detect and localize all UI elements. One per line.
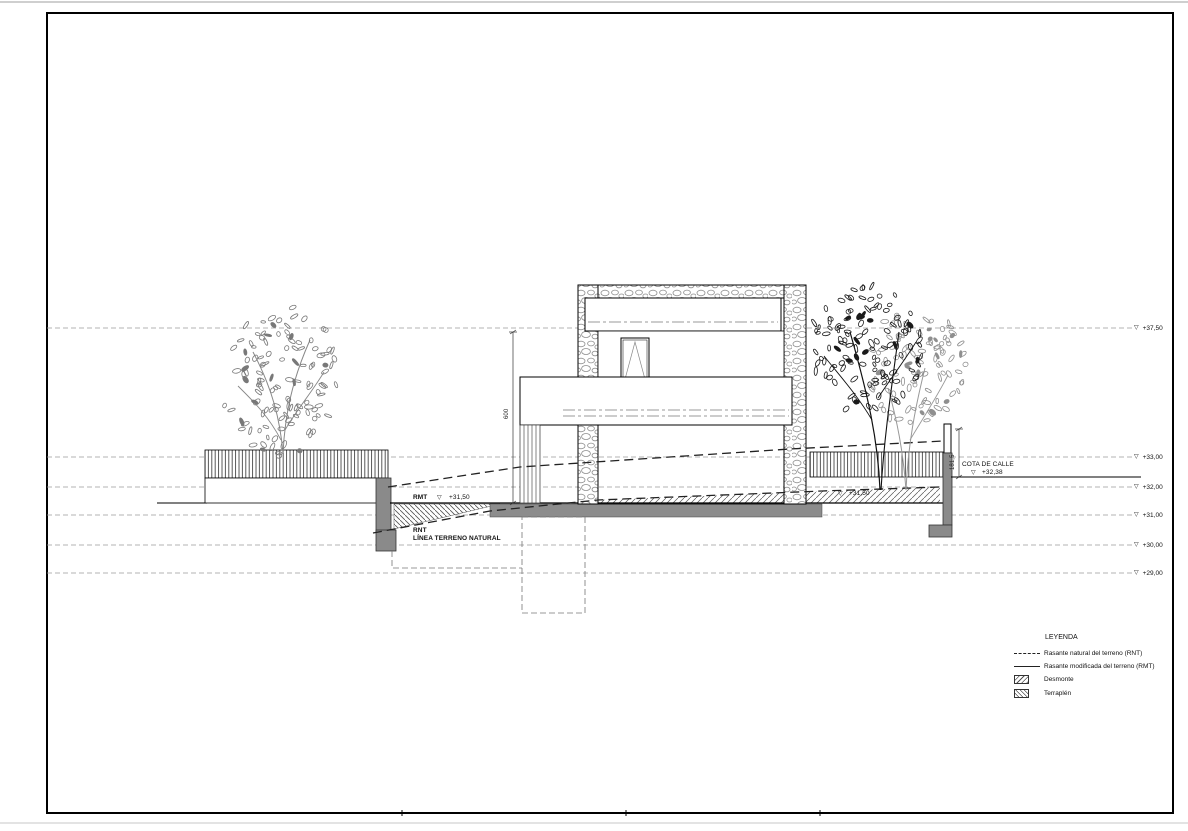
level-marker-icon: ▽ xyxy=(1134,483,1139,491)
building-section xyxy=(520,285,806,504)
level-label: +29,00 xyxy=(1143,570,1163,577)
fence-post xyxy=(944,424,951,453)
rnt-sublabel: LÍNEA TERRENO NATURAL xyxy=(413,535,501,543)
level-marker-3300: ▽ +33,00 xyxy=(1134,453,1163,461)
legend-item-rmt: Rasante modificada del terreno (RMT) xyxy=(1014,663,1155,670)
level-marker-3200: ▽ +32,00 xyxy=(1134,483,1163,491)
legend-item-rnt: Rasante natural del terreno (RNT) xyxy=(1014,650,1142,657)
right-rmt-value: +31,50 xyxy=(849,490,870,498)
legend-item-label: Terraplén xyxy=(1044,690,1071,697)
fence-dimension-line xyxy=(955,427,963,479)
section-drawing-canvas xyxy=(0,0,1188,831)
building-height-dim: 600 xyxy=(503,409,511,419)
terraplen-hatch xyxy=(394,504,500,529)
desmonte-hatch xyxy=(598,487,940,503)
legend-title: LEYENDA xyxy=(1045,634,1078,641)
stone-parapet xyxy=(578,285,806,298)
fence-height-dim: 181,5 xyxy=(949,454,957,470)
roof-fascia xyxy=(585,298,781,331)
diagonal-hatch-icon xyxy=(1014,675,1029,684)
rmt-label: RMT xyxy=(413,494,427,502)
street-level-label: COTA DE CALLE xyxy=(962,461,1014,469)
level-label: +37,50 xyxy=(1143,325,1163,332)
level-marker-icon: ▽ xyxy=(1134,324,1139,332)
level-marker-icon: ▽ xyxy=(1134,569,1139,577)
dashed-line-icon xyxy=(1014,653,1040,654)
right-rmt-marker-icon: ▽ xyxy=(838,490,843,498)
drawing-sheet: ▽ +37,50 ▽ +33,00 ▽ +32,00 ▽ +31,00 ▽ +3… xyxy=(0,0,1188,831)
legend-item-label: Desmonte xyxy=(1044,676,1074,683)
level-marker-3750: ▽ +37,50 xyxy=(1134,324,1163,332)
left-fence xyxy=(205,450,388,478)
left-tree xyxy=(222,304,338,459)
street-level-value: +32,38 xyxy=(982,469,1003,477)
level-label: +32,00 xyxy=(1143,484,1163,491)
rmt-value: +31,50 xyxy=(449,494,470,502)
level-marker-3000: ▽ +30,00 xyxy=(1134,541,1163,549)
level-label: +31,00 xyxy=(1143,512,1163,519)
solid-line-icon xyxy=(1014,666,1040,667)
porch-posts xyxy=(520,425,540,503)
level-marker-3100: ▽ +31,00 xyxy=(1134,511,1163,519)
left-planter xyxy=(157,450,388,503)
level-marker-2900: ▽ +29,00 xyxy=(1134,569,1163,577)
legend-item-desmonte: Desmonte xyxy=(1014,675,1074,684)
legend-item-terraplen: Terraplén xyxy=(1014,689,1071,698)
level-label: +30,00 xyxy=(1143,542,1163,549)
level-marker-icon: ▽ xyxy=(1134,541,1139,549)
floor-slab-band xyxy=(520,377,792,425)
level-marker-icon: ▽ xyxy=(1134,511,1139,519)
street-marker-icon: ▽ xyxy=(971,469,976,477)
rmt-marker-icon: ▽ xyxy=(437,494,442,502)
level-label: +33,00 xyxy=(1143,454,1163,461)
ground-floor-wall xyxy=(598,425,784,504)
left-retaining-wall xyxy=(376,478,396,551)
legend-item-label: Rasante modificada del terreno (RMT) xyxy=(1044,663,1155,670)
legend-item-label: Rasante natural del terreno (RNT) xyxy=(1044,650,1142,657)
level-marker-icon: ▽ xyxy=(1134,453,1139,461)
back-diagonal-hatch-icon xyxy=(1014,689,1029,698)
rnt-label: RNT xyxy=(413,527,427,535)
